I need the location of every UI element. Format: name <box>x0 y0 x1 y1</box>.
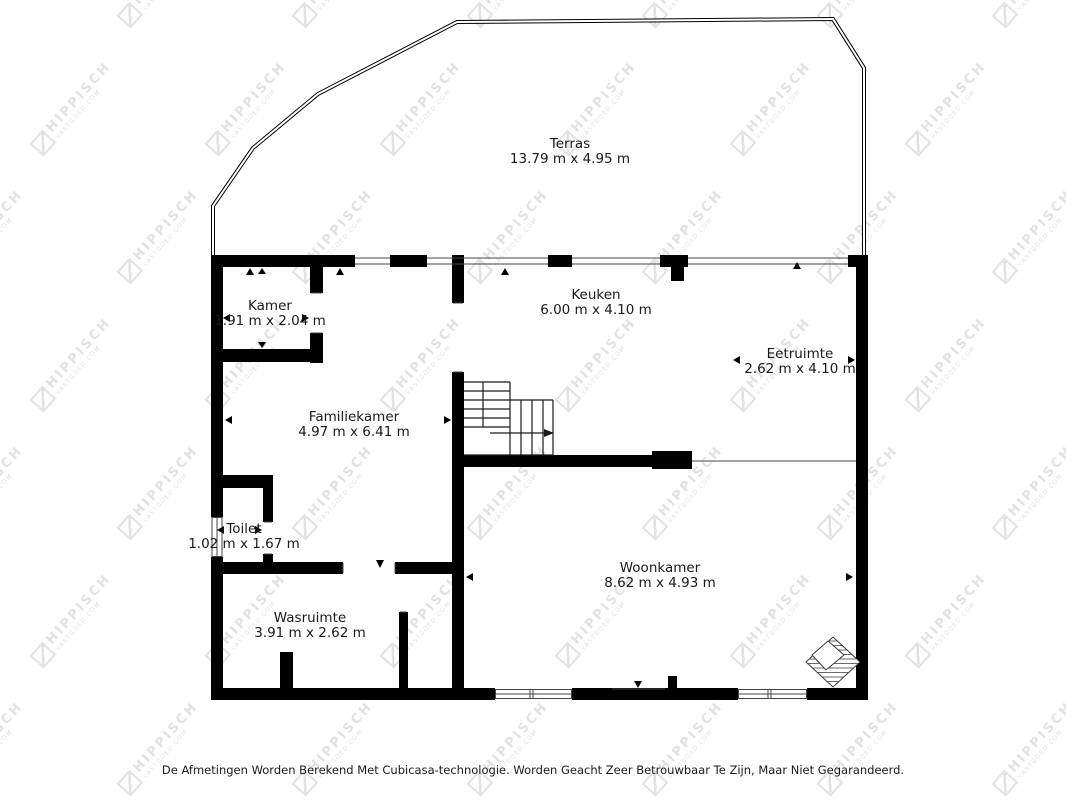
room-dimensions: 6.00 m x 4.10 m <box>540 303 652 318</box>
room-name: Keuken <box>540 288 652 303</box>
staircase <box>464 382 554 455</box>
floorplan-canvas: HIPPISCHVASTGOED.COMHIPPISCHVASTGOED.COM… <box>0 0 1066 800</box>
room-dimensions: 4.97 m x 6.41 m <box>298 425 410 440</box>
room-name: Wasruimte <box>254 611 366 626</box>
room-dimensions: 1.91 m x 2.04 m <box>214 314 326 329</box>
room-name: Woonkamer <box>604 561 716 576</box>
room-name: Terras <box>510 137 630 152</box>
room-label-wasruimte: Wasruimte 3.91 m x 2.62 m <box>254 611 366 641</box>
room-label-kamer: Kamer 1.91 m x 2.04 m <box>214 299 326 329</box>
room-dimensions: 3.91 m x 2.62 m <box>254 626 366 641</box>
room-label-terras: Terras 13.79 m x 4.95 m <box>510 137 630 167</box>
room-name: Familiekamer <box>298 410 410 425</box>
room-name: Eetruimte <box>744 347 856 362</box>
room-name: Toilet <box>188 522 300 537</box>
room-label-eetruimte: Eetruimte 2.62 m x 4.10 m <box>744 347 856 377</box>
room-dimensions: 13.79 m x 4.95 m <box>510 152 630 167</box>
room-label-toilet: Toilet 1.02 m x 1.67 m <box>188 522 300 552</box>
disclaimer-text: De Afmetingen Worden Berekend Met Cubica… <box>0 763 1066 777</box>
room-dimensions: 1.02 m x 1.67 m <box>188 537 300 552</box>
room-dimensions: 2.62 m x 4.10 m <box>744 362 856 377</box>
windows <box>211 517 807 700</box>
room-dimensions: 8.62 m x 4.93 m <box>604 576 716 591</box>
room-label-keuken: Keuken 6.00 m x 4.10 m <box>540 288 652 318</box>
room-label-woonkamer: Woonkamer 8.62 m x 4.93 m <box>604 561 716 591</box>
room-label-familiekamer: Familiekamer 4.97 m x 6.41 m <box>298 410 410 440</box>
room-name: Kamer <box>214 299 326 314</box>
floorplan-drawing <box>0 0 1066 800</box>
